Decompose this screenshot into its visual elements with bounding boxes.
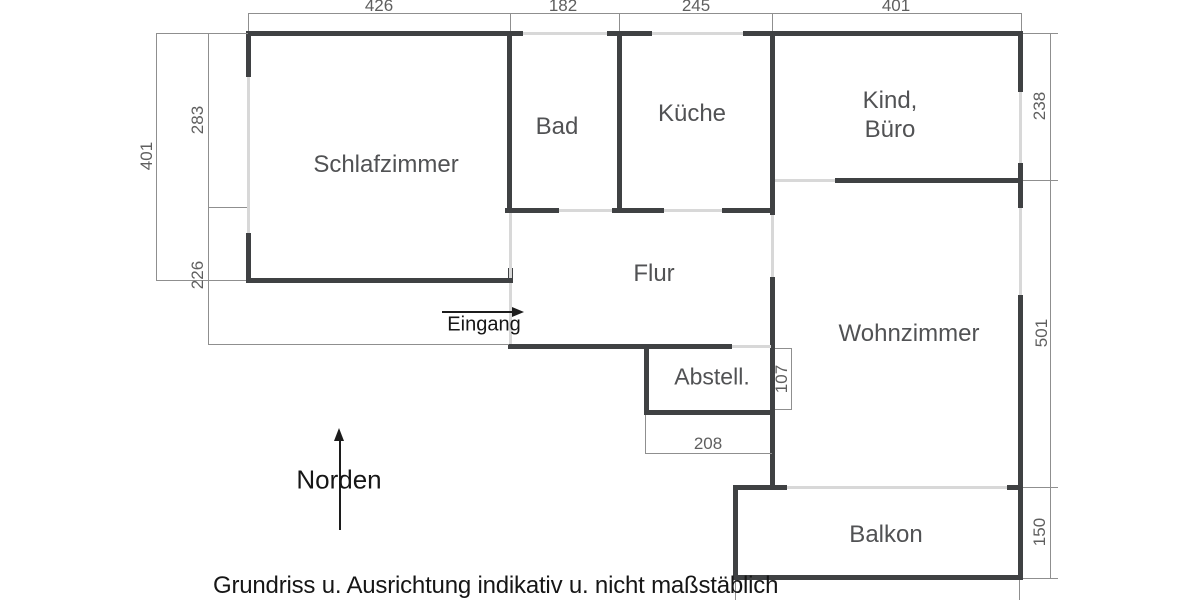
corridor-line (208, 344, 509, 345)
window-balkon (787, 486, 1007, 489)
wall-right-mid (1018, 163, 1023, 208)
dim-tick-top-5 (1021, 13, 1022, 31)
room-label-kind-buero: Kind, Büro (863, 86, 918, 144)
compass-label: Norden (296, 465, 381, 496)
dim-right-kind-buero: 238 (1030, 92, 1050, 120)
dim-tick-top-1 (248, 13, 249, 31)
wall-balkon-right (1018, 485, 1023, 580)
dim-tick-abstell-bottom (775, 409, 792, 410)
dim-tick-right-2 (1023, 180, 1058, 181)
dim-abstell-depth: 107 (772, 365, 792, 393)
wall-balkon-left (733, 485, 738, 580)
window-schlafzimmer-left (247, 77, 250, 233)
room-label-abstell: Abstell. (674, 364, 749, 391)
wall-top-schlafzimmer (246, 31, 523, 36)
dim-tick-left-top (156, 33, 248, 34)
dim-line-left-inner (208, 33, 209, 344)
dim-tick-left-mid (208, 207, 247, 208)
dim-tick-abstell-top (775, 348, 792, 349)
door-kindbuero (775, 179, 835, 182)
window-kueche-top (652, 32, 743, 35)
wall-schlafzimmer-left-lower (246, 233, 251, 283)
wall-schlafzimmer-left-upper (246, 31, 251, 77)
dim-tick-right-4 (1023, 578, 1058, 579)
door-bad (559, 209, 612, 212)
dim-tick-top-3 (619, 13, 620, 31)
dim-left-lower: 226 (188, 261, 208, 289)
dim-tick-right-3 (1023, 487, 1058, 488)
wall-flur-top-2 (612, 208, 664, 213)
wall-right-top (1018, 31, 1023, 92)
dim-ext-balkon-right (1019, 580, 1020, 600)
room-label-kind-line1: Kind, (863, 86, 918, 115)
dim-top-kind-buero: 401 (882, 0, 910, 16)
room-label-bad: Bad (536, 113, 579, 141)
dim-left-total: 401 (137, 142, 157, 170)
wall-abstell-bottom (644, 410, 775, 415)
wall-top-mid (607, 31, 652, 36)
wall-abstell-left (644, 346, 649, 415)
dim-top-kueche: 245 (682, 0, 710, 16)
dim-top-schlafzimmer: 426 (365, 0, 393, 16)
footer-note: Grundriss u. Ausrichtung indikativ u. ni… (213, 572, 778, 600)
door-wohnzimmer (771, 215, 774, 277)
window-wohnzimmer-right (1019, 208, 1022, 295)
door-abstell (732, 345, 771, 348)
room-label-flur: Flur (633, 260, 674, 288)
room-label-wohnzimmer: Wohnzimmer (839, 320, 980, 348)
dim-tick-abstell-left (645, 415, 646, 453)
dim-right-balkon: 150 (1030, 518, 1050, 546)
opening-flur-left (509, 213, 512, 278)
wall-schlafzimmer-bottom (246, 278, 513, 283)
room-label-schlafzimmer: Schlafzimmer (313, 151, 458, 179)
dim-line-right (1050, 33, 1051, 578)
wall-top-right (743, 31, 1023, 36)
wall-right-long (1018, 295, 1023, 490)
north-arrow-head (334, 428, 344, 441)
room-label-kind-line2: Büro (863, 115, 918, 144)
window-bad-top (523, 32, 607, 35)
door-kueche (664, 209, 722, 212)
dim-left-upper: 283 (188, 106, 208, 134)
wall-kindbuero-bottom (835, 178, 1023, 183)
dim-tick-right-1 (1023, 33, 1058, 34)
wall-flur-top-3 (722, 208, 775, 213)
dim-right-wohnzimmer: 501 (1032, 319, 1052, 347)
wall-flur-bottom (508, 344, 732, 349)
dim-top-bad: 182 (549, 0, 577, 16)
wall-bad-left (507, 31, 512, 213)
floor-plan: Schlafzimmer Bad Küche Kind, Büro Flur A… (0, 0, 1200, 600)
wall-balkon-top-left (733, 485, 787, 490)
room-label-balkon: Balkon (849, 521, 922, 549)
dim-tick-top-2 (510, 13, 511, 31)
window-kindbuero-right (1019, 92, 1022, 163)
wall-bad-kueche-divider (617, 31, 622, 213)
wall-flur-top-1 (505, 208, 559, 213)
dim-abstell-width: 208 (694, 434, 722, 454)
wall-kueche-right (770, 31, 775, 215)
dim-tick-top-4 (772, 13, 773, 31)
room-label-kueche: Küche (658, 100, 726, 128)
entrance-label: Eingang (447, 314, 520, 337)
